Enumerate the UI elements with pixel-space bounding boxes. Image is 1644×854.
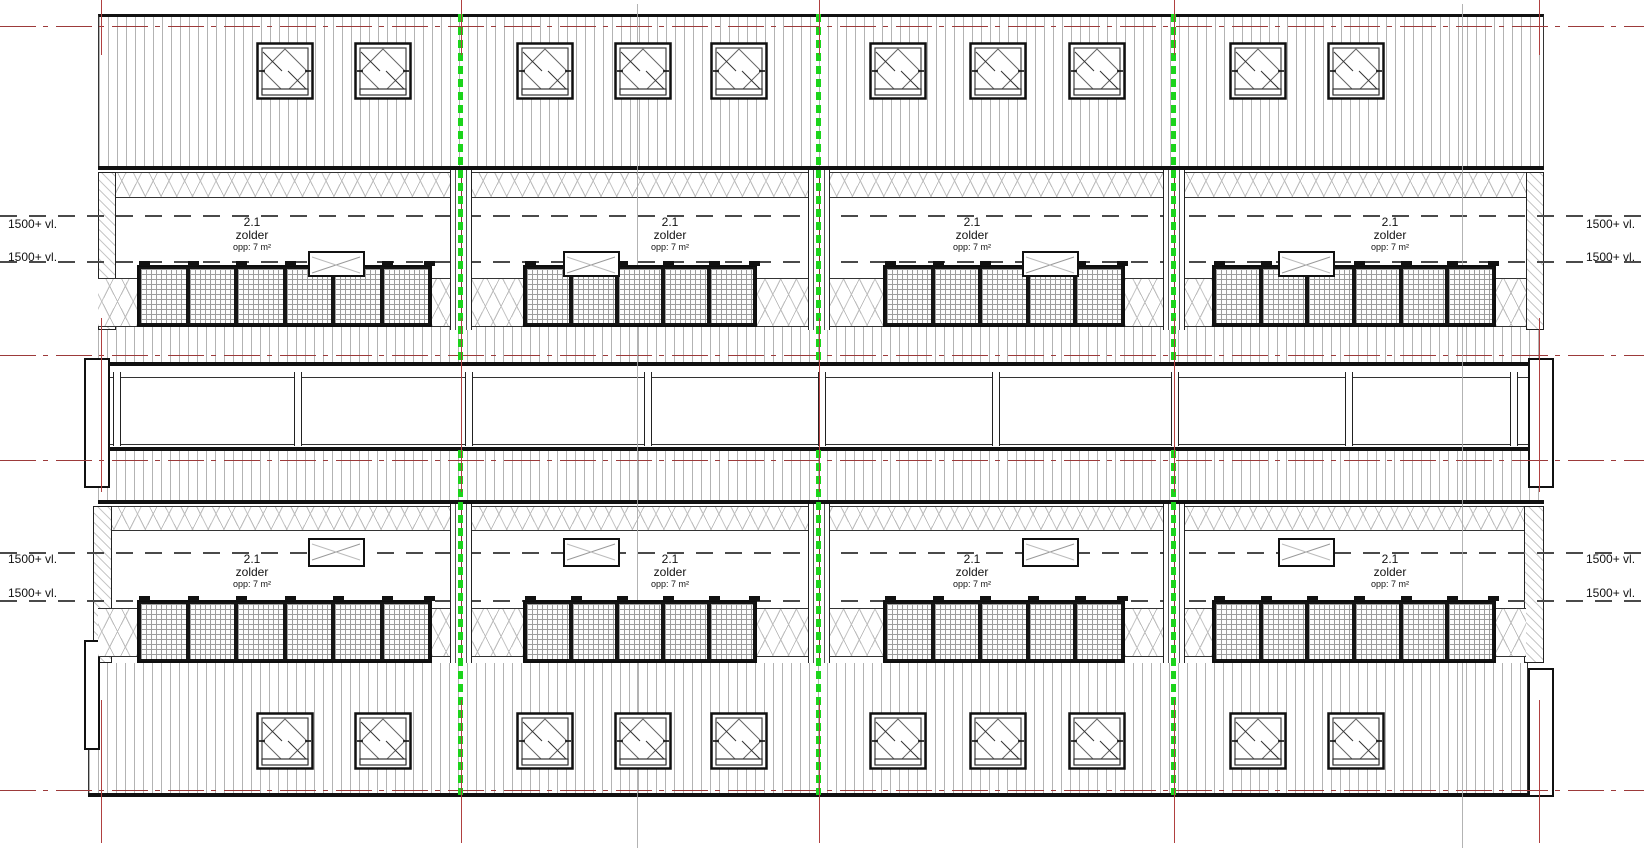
solar-panel (711, 604, 753, 659)
gallery-post (1510, 372, 1518, 446)
grid-reference-line-v (1174, 700, 1175, 843)
skylight-icon (710, 712, 768, 772)
panel-mount-tab (749, 596, 760, 601)
grid-reference-line-v (1539, 0, 1540, 55)
panel-mount-tab (933, 596, 944, 601)
solar-panel (190, 269, 235, 323)
room-area: opp: 7 m² (182, 242, 322, 253)
panel-mount-tab (1488, 596, 1499, 601)
panel-mount-tab (1117, 261, 1128, 266)
wall-strip-segment (1496, 608, 1526, 657)
solar-panel (711, 269, 753, 323)
solar-panel (1263, 604, 1306, 659)
solar-panel (1077, 269, 1121, 323)
panel-mount-tab (663, 261, 674, 266)
solar-panel-array (137, 600, 432, 663)
level-marker: 1500+ vl. (1586, 250, 1635, 264)
gallery-post (992, 372, 1000, 446)
level-marker: 1500+ vl. (8, 586, 57, 600)
gallery-post (113, 372, 121, 446)
skylight-icon (869, 42, 927, 102)
room-name: zolder (1320, 229, 1460, 242)
room-area: opp: 7 m² (902, 242, 1042, 253)
room-label: 2.1 zolder opp: 7 m² (902, 553, 1042, 590)
grid-reference-line-v (461, 318, 462, 492)
panel-mount-tab (1261, 261, 1272, 266)
grid-reference-line-v (1174, 0, 1175, 55)
roof-window (308, 251, 365, 277)
panel-mount-tab (236, 596, 247, 601)
panel-mount-tab (424, 261, 435, 266)
solar-panel (287, 604, 332, 659)
roof-window (1278, 251, 1335, 277)
solar-panel (665, 604, 707, 659)
skylight-icon (354, 42, 412, 102)
gallery-post (1345, 372, 1353, 446)
solar-panel (238, 269, 283, 323)
skylight-icon (354, 712, 412, 772)
solar-panel (1030, 604, 1074, 659)
level-marker: 1500+ vl. (8, 552, 57, 566)
room-area: opp: 7 m² (1320, 242, 1460, 253)
solar-panel-array (523, 265, 757, 327)
room-area: opp: 7 m² (182, 579, 322, 590)
solar-panel (238, 604, 283, 659)
level-marker: 1500+ vl. (8, 250, 57, 264)
panel-mount-tab (382, 261, 393, 266)
party-wall-marker-line (1171, 14, 1176, 364)
panel-mount-tab (139, 596, 150, 601)
skylight-icon (1068, 712, 1126, 772)
panel-mount-tab (617, 596, 628, 601)
room-label: 2.1 zolder opp: 7 m² (600, 216, 740, 253)
room-area: opp: 7 m² (1320, 579, 1460, 590)
solar-panel (935, 269, 979, 323)
solar-panel (619, 269, 661, 323)
solar-panel (1309, 604, 1352, 659)
skylight-icon (1068, 42, 1126, 102)
panel-mount-tab (571, 596, 582, 601)
grid-reference-line-v (461, 700, 462, 843)
solar-panel (1403, 269, 1446, 323)
roof-window (563, 251, 620, 277)
wall-strip-segment (432, 278, 523, 327)
solar-panel-array (883, 265, 1125, 327)
skylight-icon (256, 42, 314, 102)
panel-mount-tab (1307, 596, 1318, 601)
panel-mount-tab (1028, 596, 1039, 601)
panel-mount-tab (1354, 261, 1365, 266)
grid-reference-line-v (101, 0, 102, 55)
solar-panel-array (1212, 265, 1496, 327)
solar-panel (982, 269, 1026, 323)
panel-mount-tab (1261, 596, 1272, 601)
skylight-icon (1229, 712, 1287, 772)
panel-mount-tab (1488, 261, 1499, 266)
party-wall-marker-line (458, 14, 463, 364)
panel-mount-tab (525, 261, 536, 266)
generated-geometry (0, 0, 1644, 854)
panel-mount-tab (236, 261, 247, 266)
solar-panel (887, 269, 931, 323)
wall-strip-segment (432, 608, 523, 657)
solar-panel-array (137, 265, 432, 327)
solar-panel (384, 604, 429, 659)
panel-mount-tab (382, 596, 393, 601)
solar-panel (527, 269, 569, 323)
room-area: opp: 7 m² (600, 242, 740, 253)
solar-panel (1216, 269, 1259, 323)
room-name: zolder (182, 229, 322, 242)
solar-panel (619, 604, 661, 659)
panel-mount-tab (1401, 261, 1412, 266)
skylight-icon (710, 42, 768, 102)
skylight-icon (969, 712, 1027, 772)
skylight-icon (614, 712, 672, 772)
room-label: 2.1 zolder opp: 7 m² (600, 553, 740, 590)
panel-mount-tab (1401, 596, 1412, 601)
solar-panel-array (1212, 600, 1496, 663)
skylight-icon (516, 712, 574, 772)
floor-plan-drawing: 2.1 zolder opp: 7 m² 2.1 zolder opp: 7 m… (0, 0, 1644, 854)
room-name: zolder (600, 229, 740, 242)
grid-reference-line-v (819, 700, 820, 843)
panel-mount-tab (424, 596, 435, 601)
grid-reference-line-v (461, 0, 462, 55)
wall-strip-segment (98, 278, 137, 327)
panel-mount-tab (1117, 596, 1128, 601)
room-area: opp: 7 m² (600, 579, 740, 590)
level-marker: 1500+ vl. (1586, 552, 1635, 566)
room-label: 2.1 zolder opp: 7 m² (182, 216, 322, 253)
skylight-icon (256, 712, 314, 772)
grid-reference-line-v (1539, 318, 1540, 492)
room-name: zolder (902, 229, 1042, 242)
roof-window (1022, 251, 1079, 277)
solar-panel (1077, 604, 1121, 659)
solar-panel (335, 604, 380, 659)
gallery-post (1171, 372, 1179, 446)
solar-panel (1356, 269, 1399, 323)
grid-reference-line-v (819, 318, 820, 492)
room-label: 2.1 zolder opp: 7 m² (1320, 216, 1460, 253)
solar-panel (1216, 604, 1259, 659)
room-name: zolder (1320, 566, 1460, 579)
skylight-icon (1327, 42, 1385, 102)
gallery-post (644, 372, 652, 446)
room-name: zolder (600, 566, 740, 579)
panel-mount-tab (885, 261, 896, 266)
panel-mount-tab (980, 596, 991, 601)
room-label: 2.1 zolder opp: 7 m² (902, 216, 1042, 253)
solar-panel (1356, 604, 1399, 659)
panel-mount-tab (749, 261, 760, 266)
panel-mount-tab (525, 596, 536, 601)
solar-panel-array (523, 600, 757, 663)
grid-reference-line-v (1539, 700, 1540, 843)
grid-reference-line-v (101, 700, 102, 843)
solar-panel (190, 604, 235, 659)
solar-panel (935, 604, 979, 659)
skylight-icon (614, 42, 672, 102)
panel-mount-tab (285, 596, 296, 601)
solar-panel (887, 604, 931, 659)
panel-mount-tab (188, 596, 199, 601)
solar-panel (982, 604, 1026, 659)
solar-panel (665, 269, 707, 323)
panel-mount-tab (1354, 596, 1365, 601)
room-name: zolder (182, 566, 322, 579)
room-area: opp: 7 m² (902, 579, 1042, 590)
skylight-icon (1327, 712, 1385, 772)
grid-reference-line-v (101, 318, 102, 492)
panel-mount-tab (933, 261, 944, 266)
party-wall-marker-line (816, 14, 821, 364)
panel-mount-tab (1214, 261, 1225, 266)
grid-reference-line-v (1174, 318, 1175, 492)
solar-panel (527, 604, 569, 659)
level-marker: 1500+ vl. (1586, 586, 1635, 600)
gallery-post (465, 372, 473, 446)
wall-strip-segment (98, 608, 137, 657)
gallery-post (294, 372, 302, 446)
solar-panel (141, 604, 186, 659)
panel-mount-tab (1447, 596, 1458, 601)
room-label: 2.1 zolder opp: 7 m² (182, 553, 322, 590)
grid-reference-line-v (819, 0, 820, 55)
panel-mount-tab (1075, 596, 1086, 601)
panel-mount-tab (1214, 596, 1225, 601)
panel-mount-tab (139, 261, 150, 266)
room-label: 2.1 zolder opp: 7 m² (1320, 553, 1460, 590)
panel-mount-tab (709, 261, 720, 266)
panel-mount-tab (1447, 261, 1458, 266)
skylight-icon (869, 712, 927, 772)
panel-mount-tab (663, 596, 674, 601)
panel-mount-tab (885, 596, 896, 601)
level-marker: 1500+ vl. (1586, 217, 1635, 231)
solar-panel (141, 269, 186, 323)
skylight-icon (516, 42, 574, 102)
panel-mount-tab (285, 261, 296, 266)
panel-mount-tab (333, 596, 344, 601)
level-marker: 1500+ vl. (8, 217, 57, 231)
panel-mount-tab (980, 261, 991, 266)
solar-panel (1449, 269, 1492, 323)
panel-mount-tab (188, 261, 199, 266)
solar-panel (1403, 604, 1446, 659)
room-name: zolder (902, 566, 1042, 579)
solar-panel (384, 269, 429, 323)
solar-panel (573, 604, 615, 659)
solar-panel-array (883, 600, 1125, 663)
wall-strip-segment (1496, 278, 1526, 327)
skylight-icon (969, 42, 1027, 102)
skylight-icon (1229, 42, 1287, 102)
solar-panel (1449, 604, 1492, 659)
panel-mount-tab (709, 596, 720, 601)
